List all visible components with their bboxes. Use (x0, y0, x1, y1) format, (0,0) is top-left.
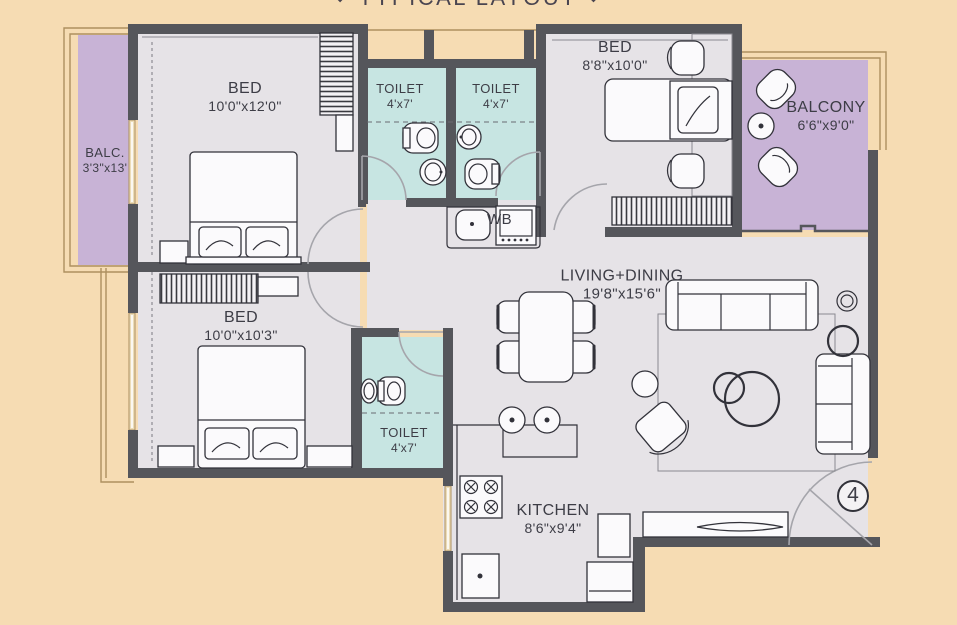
title-ornament-icon: ◆ (589, 0, 600, 4)
plan-title-text: TYPICAL LAYOUT (359, 0, 577, 10)
bed3-side-table (307, 446, 352, 467)
floorplan: ◆TYPICAL LAYOUT◆ BED 10'0"x12'0" BED 8'8… (0, 0, 957, 625)
bed1-label: BED 10'0"x12'0" (208, 79, 281, 115)
bed3-side-table (158, 446, 194, 467)
bed3-wardrobe (160, 274, 258, 303)
toilet3-label: TOILET 4'x7' (380, 425, 428, 455)
fridge-icon (587, 562, 633, 602)
bed2-wardrobe (612, 197, 732, 225)
kitchen-cabinet (598, 514, 630, 557)
bed1-wardrobe (320, 33, 353, 115)
pillow (246, 227, 288, 257)
pillow (199, 227, 241, 257)
kitchen-label: KITCHEN 8'6"x9'4" (516, 501, 589, 537)
bed1-side-table (160, 241, 188, 263)
wash-basin-label: WB (487, 211, 512, 228)
bed3-label: BED 10'0"x10'3" (204, 308, 277, 344)
pillow (678, 87, 718, 133)
sofa-3seat (666, 280, 818, 330)
balcony-right-label: BALCONY 6'6"x9'0" (786, 98, 865, 134)
bed2-label: BED 8'8"x10'0" (582, 38, 647, 74)
dining-table (519, 292, 573, 382)
toilet1-label: TOILET 4'x7' (376, 81, 424, 111)
toilet2-label: TOILET 4'x7' (472, 81, 520, 111)
title-ornament-icon: ◆ (336, 0, 347, 4)
bed2-chair (671, 154, 704, 188)
living-label: LIVING+DINING 19'8"x15'6" (560, 266, 683, 303)
balcony-left-label: BALC. 3'3"x13' (83, 145, 128, 175)
bed2-chair (671, 41, 704, 75)
unit-number: 4 (847, 484, 859, 508)
side-table (632, 371, 658, 397)
plan-title: ◆TYPICAL LAYOUT◆ (324, 0, 612, 11)
